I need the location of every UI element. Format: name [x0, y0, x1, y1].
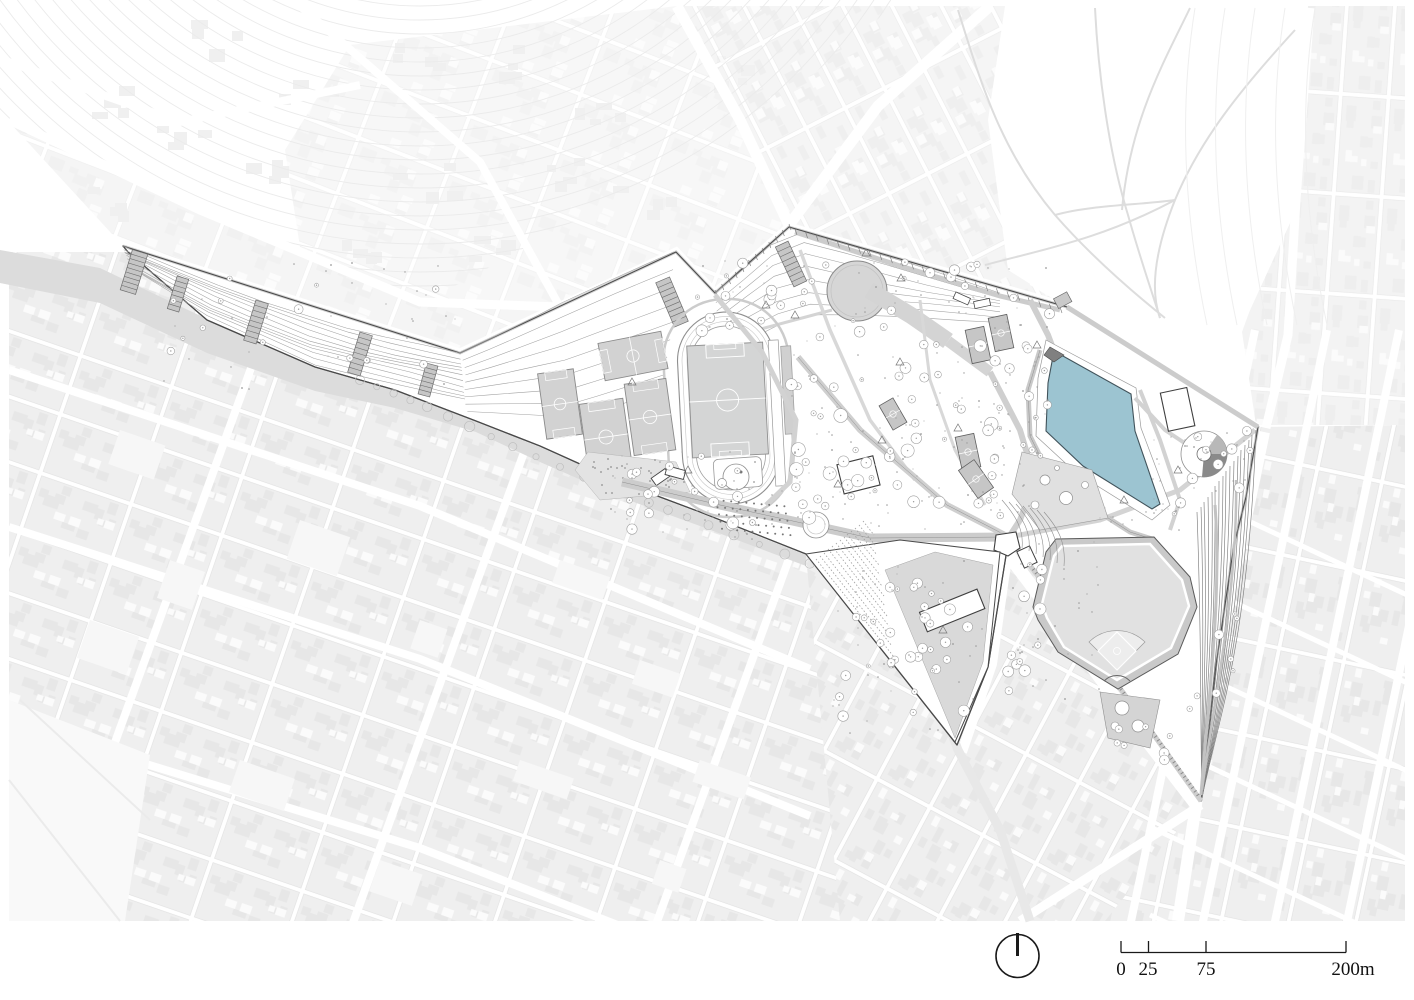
svg-text:0: 0	[1116, 959, 1126, 980]
svg-text:200m: 200m	[1331, 959, 1375, 980]
svg-text:25: 25	[1139, 959, 1158, 980]
svg-text:75: 75	[1197, 959, 1216, 980]
